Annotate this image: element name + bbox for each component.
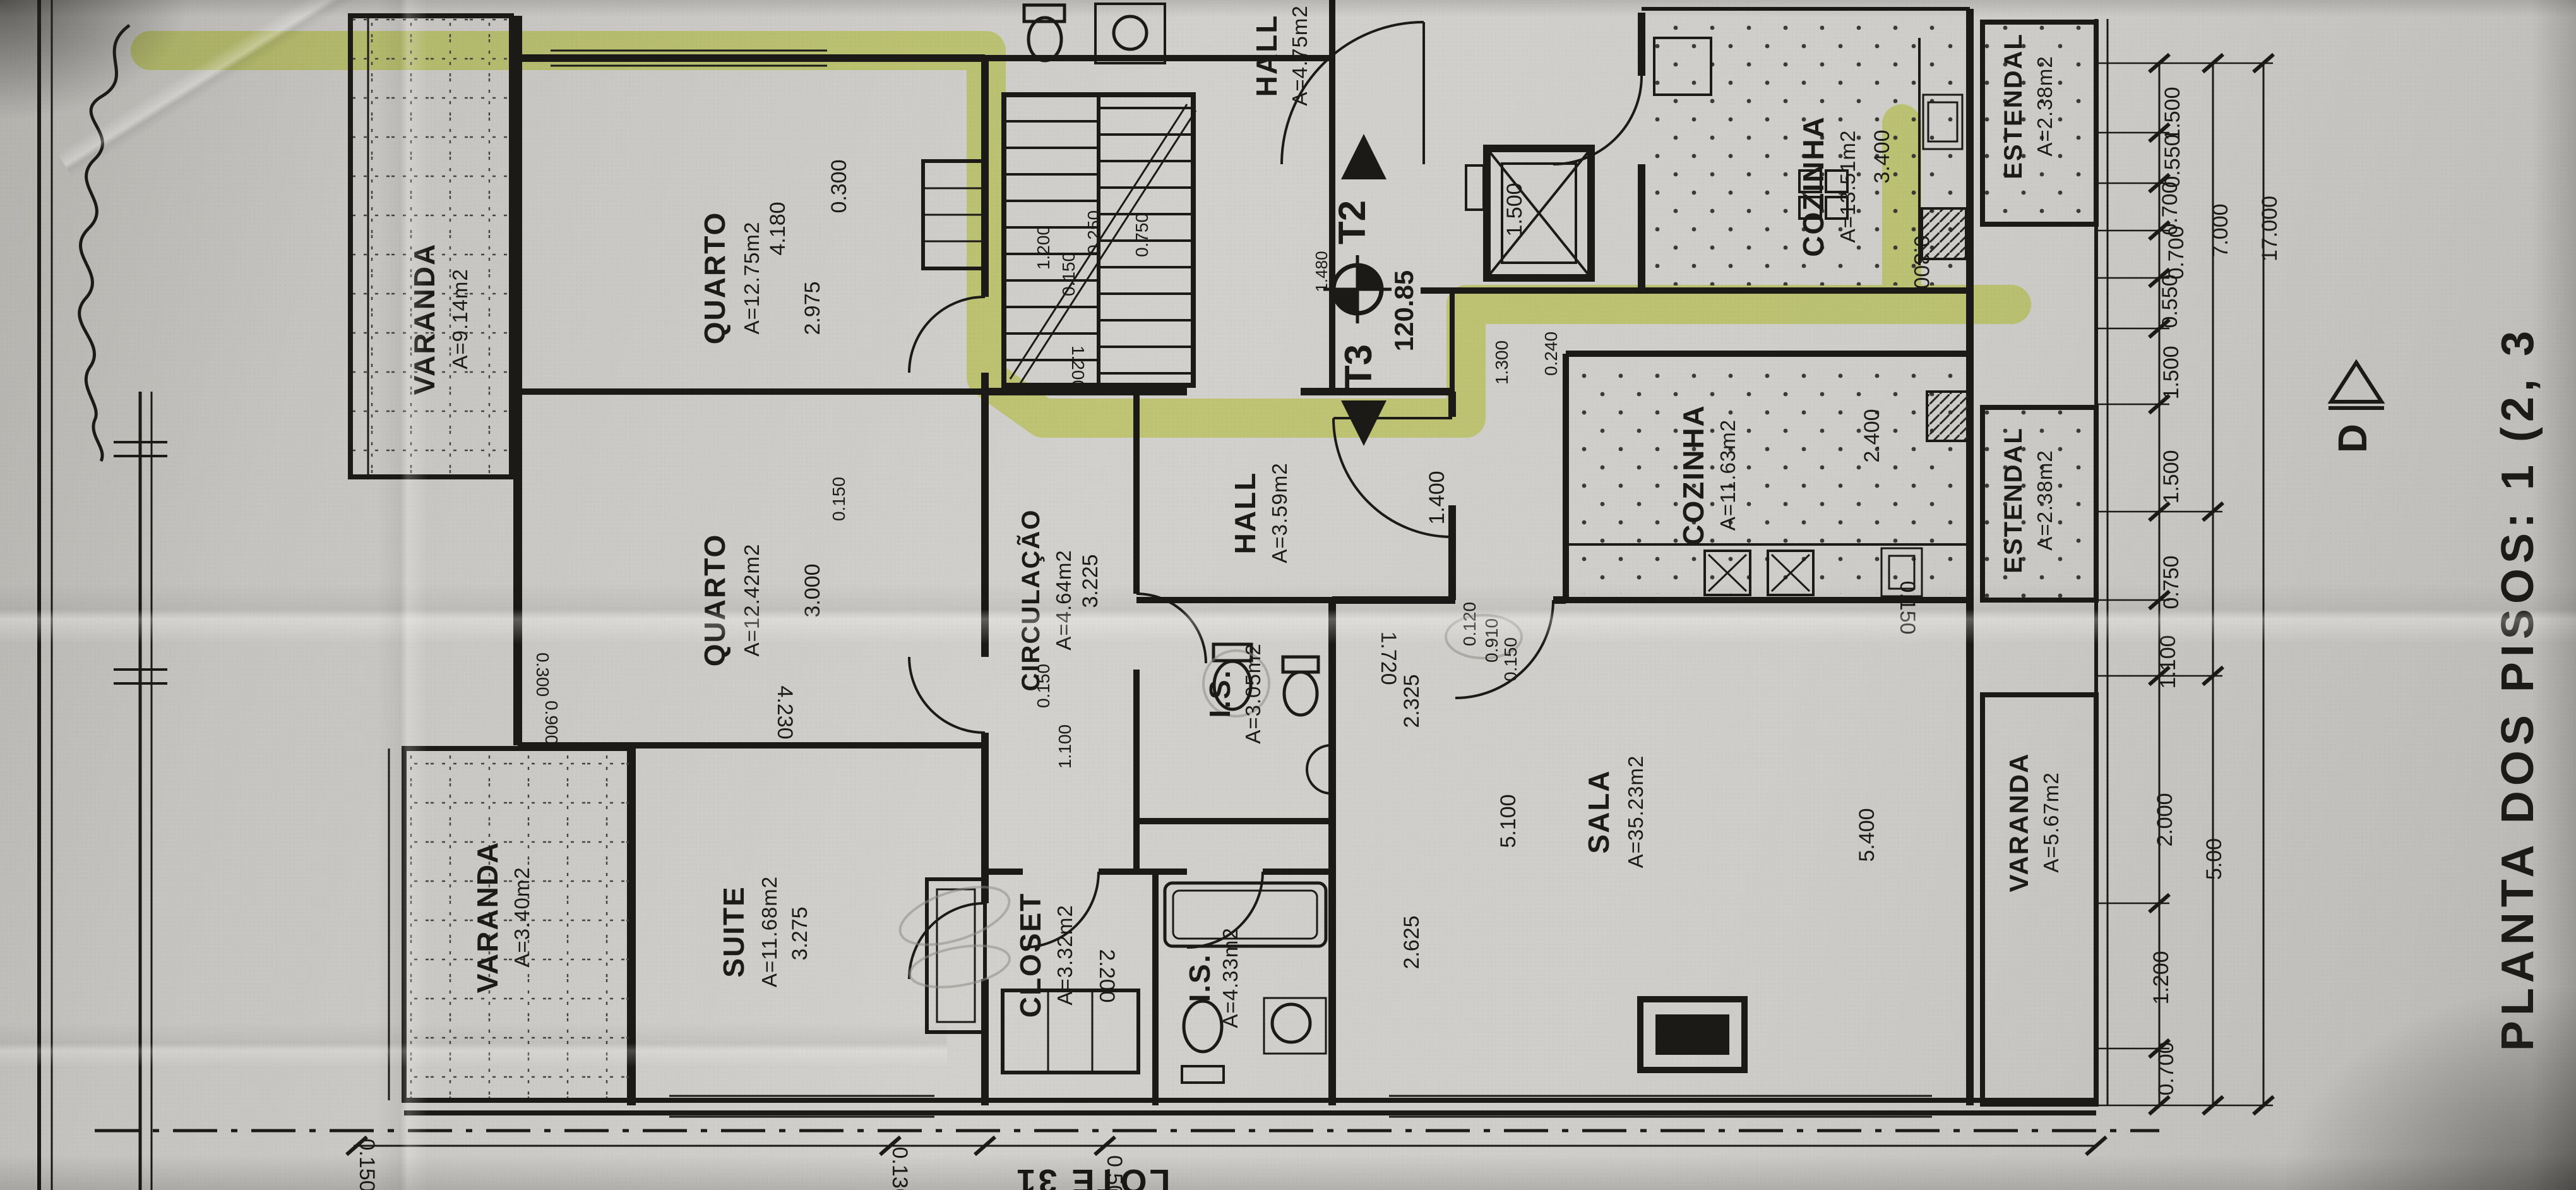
dim-label: 0.150 (1059, 252, 1078, 296)
svg-text:A=4.33m2: A=4.33m2 (1219, 927, 1242, 1028)
vegetation-line (80, 25, 129, 461)
dim-label: 1.100 (1055, 724, 1075, 769)
level-sub-label: 1.480 (1312, 251, 1331, 292)
dim-label: 5.100 (1496, 794, 1520, 848)
svg-text:I.S.: I.S. (1183, 953, 1216, 1002)
svg-text:I.S.: I.S. (1203, 669, 1236, 718)
dim-label: 0.150 (1501, 637, 1520, 682)
t2-label: T2 (1331, 200, 1373, 244)
dim-label: 0.550 (2158, 274, 2182, 328)
dim-label: 3.000 (801, 563, 825, 617)
svg-text:SALA: SALA (1582, 769, 1615, 853)
svg-text:A=2.38m2: A=2.38m2 (2033, 56, 2056, 156)
dim-label: 0.250 (1084, 210, 1104, 255)
svg-text:A=4.64m2: A=4.64m2 (1052, 550, 1075, 650)
svg-text:A=4.75m2: A=4.75m2 (1288, 5, 1311, 105)
dim-label: 5.400 (1855, 808, 1879, 862)
drawing-title: PLANTA DOS PISOS: 1 (2, 3 (2493, 326, 2543, 1051)
dim-label: 0.150 (829, 477, 849, 521)
room-quarto-mid: QUARTO A=12.42m2 (698, 534, 763, 667)
section-marker-d: D (2329, 363, 2384, 453)
dim-label: 7.000 (2209, 203, 2233, 257)
dim-label: 0.240 (1541, 332, 1561, 376)
dim-label: 2.000 (2153, 793, 2177, 846)
lot-label: LOTE 31 (1014, 1162, 1170, 1190)
dim-label: 0.300 (533, 652, 552, 697)
svg-text:A=12.75m2: A=12.75m2 (740, 222, 763, 335)
dim-label: 1.500 (2161, 87, 2185, 140)
room-quarto-top: QUARTO A=12.75m2 (698, 212, 763, 345)
t3-label: T3 (1337, 344, 1380, 388)
svg-text:HALL: HALL (1229, 472, 1261, 555)
svg-text:A=3.05m2: A=3.05m2 (1241, 643, 1265, 743)
dim-label: 0.750 (1132, 213, 1152, 257)
svg-text:COZINHA: COZINHA (1677, 404, 1710, 546)
svg-text:QUARTO: QUARTO (698, 534, 731, 667)
dim-label: 0.700 (2164, 225, 2188, 279)
dim-label: 0.910 (1482, 618, 1501, 663)
svg-text:ESTENDAL: ESTENDAL (2000, 33, 2027, 179)
dim-label: 1.100 (2156, 635, 2180, 688)
svg-text:HALL: HALL (1250, 15, 1283, 97)
room-varanda-right: VARANDA A=5.67m2 (2004, 753, 2063, 892)
svg-text:A=13.51m2: A=13.51m2 (1836, 130, 1859, 243)
dim-label: 3.275 (788, 906, 812, 960)
dim-label: 4.230 (773, 685, 797, 739)
dim-label: 0.150 (355, 1138, 379, 1190)
dim-label: 0.150 (1895, 580, 1919, 634)
dim-label: 5.00 (2202, 838, 2226, 880)
wc-top-fixtures (1024, 4, 1165, 63)
dim-label: 1.720 (1376, 631, 1400, 685)
svg-text:CLOSET: CLOSET (1014, 892, 1047, 1018)
dim-label: 1.200 (1034, 225, 1053, 270)
dim-label: 1.200 (1068, 346, 1088, 390)
dim-label: 1.500 (2159, 450, 2183, 503)
room-suite: SUITE A=11.68m2 (717, 876, 781, 987)
svg-text:ESTENDAL: ESTENDAL (2000, 427, 2027, 574)
dim-label: 2.625 (1400, 915, 1424, 969)
room-cozinha-top: COZINHA A=13.51m2 (1797, 116, 1859, 257)
dim-label: 3.400 (1870, 129, 1894, 183)
dim-label: 17.000 (2258, 196, 2282, 261)
svg-text:VARANDA: VARANDA (471, 841, 504, 994)
room-closet: CLOSET A=3.32m2 (1014, 892, 1076, 1018)
dim-label: 2.200 (1095, 949, 1119, 1002)
dim-label: 0.300 (1909, 235, 1933, 289)
room-hall: HALL A=3.59m2 (1229, 462, 1291, 563)
dim-label: 1.300 (1492, 340, 1512, 385)
dim-label: 0.700 (2154, 1042, 2178, 1095)
dim-label: 4.180 (766, 201, 790, 255)
dim-label: 0.150 (1034, 664, 1053, 708)
svg-text:A=3.59m2: A=3.59m2 (1268, 462, 1291, 563)
room-hall-top: HALL A=4.75m2 (1250, 5, 1311, 105)
dim-label: 2.975 (801, 281, 825, 335)
svg-text:A=3.32m2: A=3.32m2 (1053, 905, 1076, 1005)
svg-text:A=2.38m2: A=2.38m2 (2033, 450, 2056, 550)
dim-label: 0.550 (2161, 134, 2185, 188)
svg-text:QUARTO: QUARTO (698, 212, 731, 345)
dim-label: 0.130 (888, 1146, 912, 1190)
svg-text:A=11.68m2: A=11.68m2 (758, 876, 781, 987)
level-value: 120.85 (1389, 270, 1419, 351)
dim-label: 1.400 (1425, 471, 1449, 524)
dim-label: 1.200 (2149, 951, 2173, 1004)
fireplace-block (1640, 999, 1744, 1070)
is-top-fixtures (1213, 644, 1331, 793)
svg-text:COZINHA: COZINHA (1797, 116, 1830, 257)
elevator-shaft (1466, 148, 1591, 278)
photo-of-floor-plan: { "title": "PLANTA DOS PISOS: 1 (2, 3", … (0, 0, 2576, 1190)
dim-label: 0.120 (1460, 602, 1479, 646)
section-marker-label: D (2330, 424, 2375, 453)
floor-plan-drawing: T2 1.480 120.85 T3 D VARANDA A=9.14m2 QU… (0, 0, 2576, 1190)
dim-label: 2.325 (1400, 674, 1424, 728)
svg-text:VARANDA: VARANDA (2004, 753, 2034, 892)
balcony-varanda-right (1983, 695, 2096, 1104)
svg-text:A=12.42m2: A=12.42m2 (740, 544, 763, 657)
dim-label: 1.500 (1503, 183, 1527, 236)
svg-text:A=35.23m2: A=35.23m2 (1624, 755, 1647, 868)
room-sala: SALA A=35.23m2 (1582, 755, 1647, 868)
dim-label: 0.900 (542, 700, 561, 745)
dim-label: 0.750 (2159, 555, 2183, 609)
svg-text:A=5.67m2: A=5.67m2 (2039, 772, 2063, 872)
room-cozinha-mid: COZINHA A=11.63m2 (1677, 404, 1739, 546)
svg-text:VARANDA: VARANDA (408, 243, 441, 395)
dim-label: 3.225 (1078, 554, 1102, 608)
svg-text:A=3.40m2: A=3.40m2 (510, 867, 534, 967)
t2-arrow-icon (1341, 134, 1386, 179)
dim-label: 2.400 (1860, 409, 1884, 462)
svg-text:A=9.14m2: A=9.14m2 (448, 268, 472, 369)
svg-text:A=11.63m2: A=11.63m2 (1716, 419, 1739, 531)
dim-label: 1.500 (2159, 346, 2183, 399)
svg-text:SUITE: SUITE (717, 886, 750, 977)
dim-label: 0.300 (827, 159, 851, 213)
